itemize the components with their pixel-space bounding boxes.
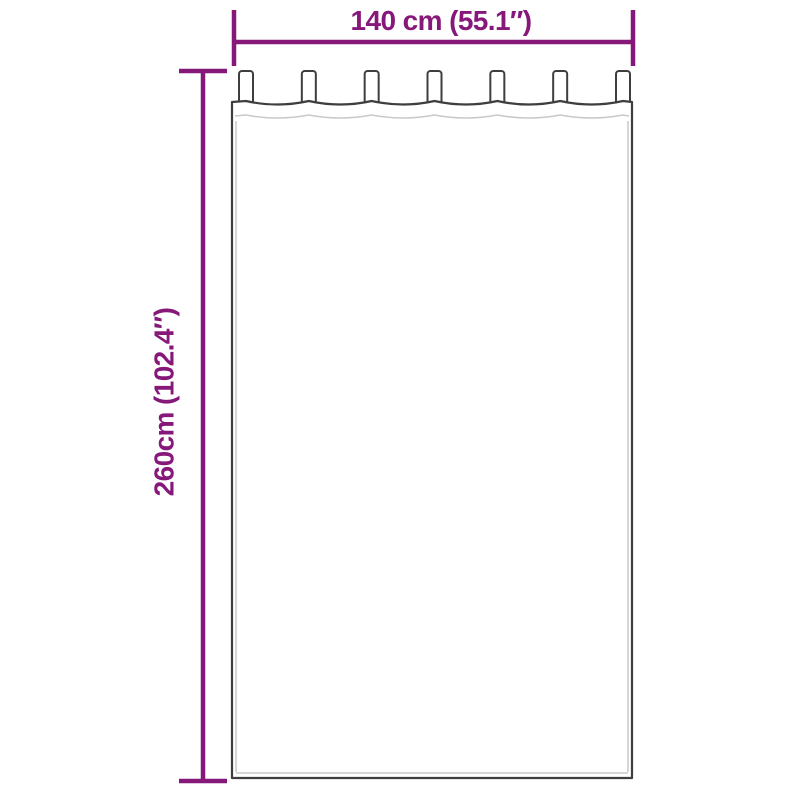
curtain-line-drawing: [0, 0, 800, 800]
height-dimension-label: 260cm (102.4″): [150, 308, 181, 497]
curtain-panel: [232, 101, 632, 778]
vertical-dimension-line: [179, 71, 227, 781]
width-dimension-label: 140 cm (55.1″): [351, 6, 532, 37]
product-dimension-diagram: 140 cm (55.1″) 260cm (102.4″): [0, 0, 800, 800]
